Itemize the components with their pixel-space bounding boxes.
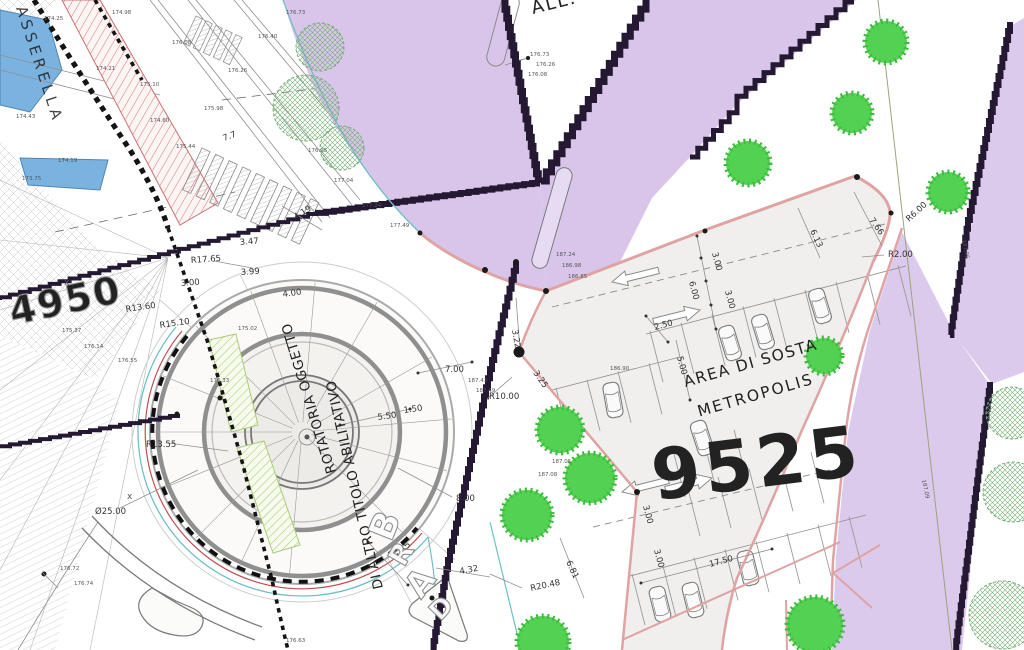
spot-elevation: 187.49 — [476, 388, 496, 394]
x-marker: x — [127, 492, 133, 502]
tree-icon — [565, 453, 615, 503]
spot-elevation: 176.08 — [528, 72, 548, 78]
tree-icon — [726, 141, 770, 185]
dimension-label: Ø25.00 — [95, 506, 126, 517]
spot-elevation: 174.43 — [16, 114, 36, 120]
spot-elevation: 174.25 — [44, 16, 64, 22]
spot-elevation: 176.63 — [286, 638, 306, 644]
spot-elevation: 176.33 — [210, 378, 230, 384]
spot-elevation: 176.73 — [530, 52, 550, 58]
tree-icon — [928, 172, 968, 212]
spot-elevation: 176.08 — [172, 40, 192, 46]
spot-elevation: 175.10 — [140, 82, 160, 88]
spot-elevation: 176.55 — [118, 358, 138, 364]
spot-elevation: 187.43 — [468, 378, 488, 384]
spot-elevation: 174.60 — [150, 118, 170, 124]
spot-elevation: 187.05 — [552, 459, 572, 465]
spot-elevation: 176.74 — [74, 581, 94, 587]
spot-elevation: 174.21 — [96, 66, 115, 72]
tree-hatch-icon — [296, 23, 344, 71]
spot-elevation: 187.08 — [538, 472, 558, 478]
dimension-label: 8.00 — [456, 494, 475, 504]
tree-icon — [865, 21, 907, 63]
dimension-label: R2.00 — [888, 250, 913, 260]
spot-elevation: 186.90 — [610, 366, 630, 372]
spot-elevation: 177.24 — [362, 203, 382, 209]
spot-elevation: 175.37 — [62, 328, 82, 334]
dimension-label: 3.99 — [241, 267, 261, 278]
dimension-label: 3.00 — [181, 278, 201, 289]
spot-elevation: 176.26 — [536, 62, 556, 68]
dimension-label: R13.55 — [146, 440, 176, 450]
spot-elevation: 176.26 — [228, 68, 248, 74]
spot-elevation: 177.49 — [390, 223, 410, 229]
site-plan-canvas: ASSERELLA ALL. ROTATORIA OGGETTO DI ALTR… — [0, 0, 1024, 650]
spot-elevation: 176.95 — [308, 148, 328, 154]
spot-elevation: 174.98 — [112, 10, 132, 16]
spot-elevation: 176.72 — [60, 566, 79, 572]
spot-elevation: 174.19 — [58, 158, 78, 164]
tree-icon — [537, 407, 583, 453]
dimension-label: R17.65 — [191, 254, 222, 266]
spot-elevation: 186.85 — [568, 274, 588, 280]
tree-icon — [502, 490, 552, 540]
spot-elevation: 176.40 — [258, 34, 278, 40]
spot-elevation: 177.04 — [334, 178, 354, 184]
spot-elevation: 175.02 — [238, 326, 257, 332]
x-marker: x — [64, 278, 70, 288]
spot-elevation: 175.98 — [204, 106, 224, 112]
spot-elevation: 176.73 — [286, 10, 306, 16]
spot-elevation: 173.75 — [22, 176, 42, 182]
spot-elevation: 187.24 — [556, 252, 576, 258]
spot-elevation: 175.44 — [176, 144, 196, 150]
dimension-label: 7.00 — [445, 365, 464, 375]
tree-icon — [832, 93, 872, 133]
dimension-label: 3.47 — [239, 236, 259, 248]
spot-elevation: 176.14 — [84, 344, 104, 350]
spot-elevation: 186.98 — [562, 263, 582, 269]
